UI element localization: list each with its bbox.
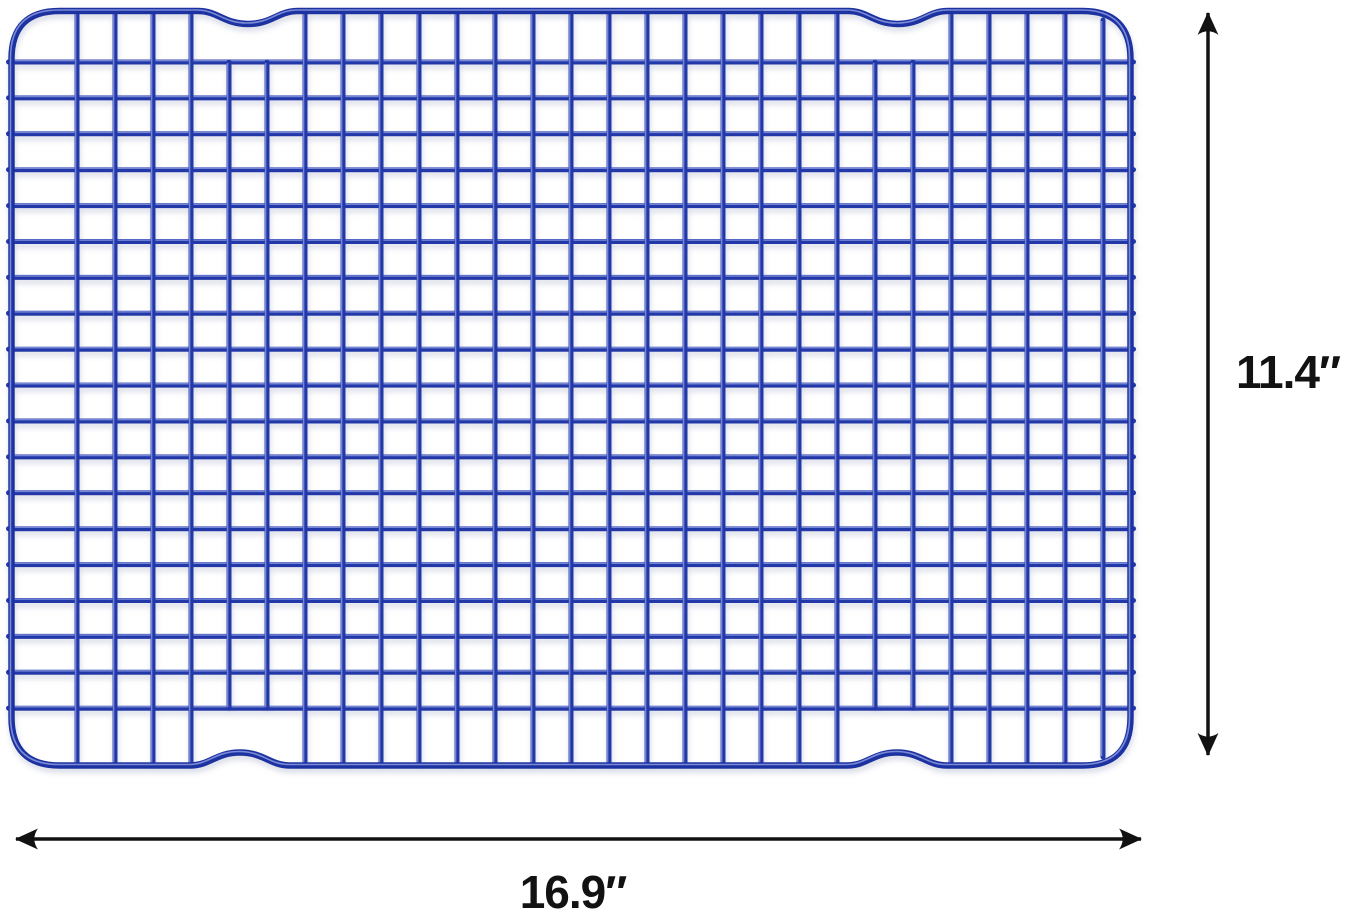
rack-wire-grid [9, 10, 1134, 766]
height-dimension-label: 11.4″ [1236, 349, 1340, 395]
product-image-canvas: 11.4″ 16.9″ [0, 0, 1346, 921]
width-dimension-label: 16.9″ [0, 869, 1146, 915]
cooling-rack-illustration [0, 0, 1346, 921]
